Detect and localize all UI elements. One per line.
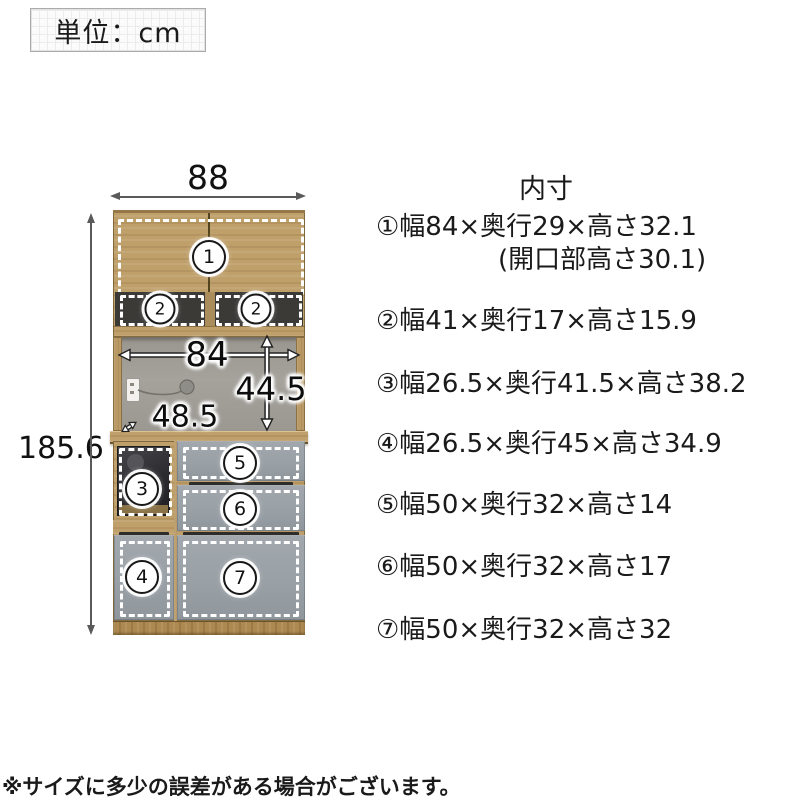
overall-height-label: 185.6 (18, 431, 96, 466)
zone-5-badge: 5 (223, 446, 257, 480)
spec-line-1b: (開口部高さ30.1) (498, 239, 706, 276)
spec-line-4: ④幅26.5×奥行45×高さ34.9 (376, 423, 722, 460)
base-plinth (113, 621, 305, 635)
cabinet-illustration: 1 2 2 84 44.5 48.5 (113, 210, 305, 634)
height-dimension-arrow (87, 213, 96, 635)
zone-2-left-badge: 2 (145, 294, 176, 325)
zone-3-badge: 3 (125, 472, 159, 506)
zone-7-badge: 7 (223, 561, 257, 595)
counter-depth-label: 48.5 (152, 400, 219, 435)
upper-cabinet: 1 2 2 (113, 210, 305, 337)
zone-4-badge: 4 (125, 560, 159, 594)
power-outlet (126, 378, 140, 402)
width-dimension-arrow (110, 192, 306, 201)
open-shelf-band (115, 292, 303, 326)
unit-box: 単位：cm (30, 8, 206, 52)
spec-line-1: ①幅84×奥行29×高さ32.1 (376, 206, 697, 243)
zone-1-badge: 1 (192, 240, 226, 274)
inner-width-label: 84 (185, 335, 228, 375)
inner-height-label: 44.5 (235, 370, 306, 408)
spec-line-3: ③幅26.5×奥行41.5×高さ38.2 (376, 363, 747, 400)
size-disclaimer-note: ※サイズに多少の誤差がある場合がございます。 (2, 771, 461, 801)
spec-line-7: ⑦幅50×奥行32×高さ32 (376, 609, 672, 646)
zone-2-right-badge: 2 (241, 294, 272, 325)
arrow-down-icon (87, 625, 95, 635)
spec-line-6: ⑥幅50×奥行32×高さ17 (376, 546, 672, 583)
lower-cabinet: 3 4 5 6 7 (113, 441, 305, 621)
specs-title: 内寸 (519, 167, 573, 206)
arrow-right-icon (296, 192, 306, 200)
spec-line-5: ⑤幅50×奥行32×高さ14 (376, 484, 672, 521)
zone-6-badge: 6 (223, 492, 257, 526)
spec-line-2: ②幅41×奥行17×高さ15.9 (376, 300, 697, 337)
unit-label: 単位：cm (54, 11, 181, 50)
